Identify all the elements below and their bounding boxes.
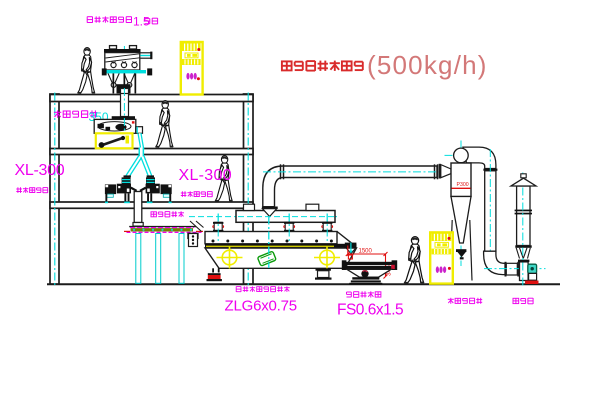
svg-text:P300: P300 [457, 182, 469, 188]
svg-text:ZLG6x0.75: ZLG6x0.75 [225, 298, 297, 315]
svg-text:(500kg/h): (500kg/h) [367, 50, 488, 80]
svg-text:1500: 1500 [359, 249, 373, 255]
svg-text:XL-300: XL-300 [179, 167, 232, 184]
svg-text:XL-300: XL-300 [15, 162, 65, 179]
svg-text:FS0.6x1.5: FS0.6x1.5 [337, 302, 403, 319]
